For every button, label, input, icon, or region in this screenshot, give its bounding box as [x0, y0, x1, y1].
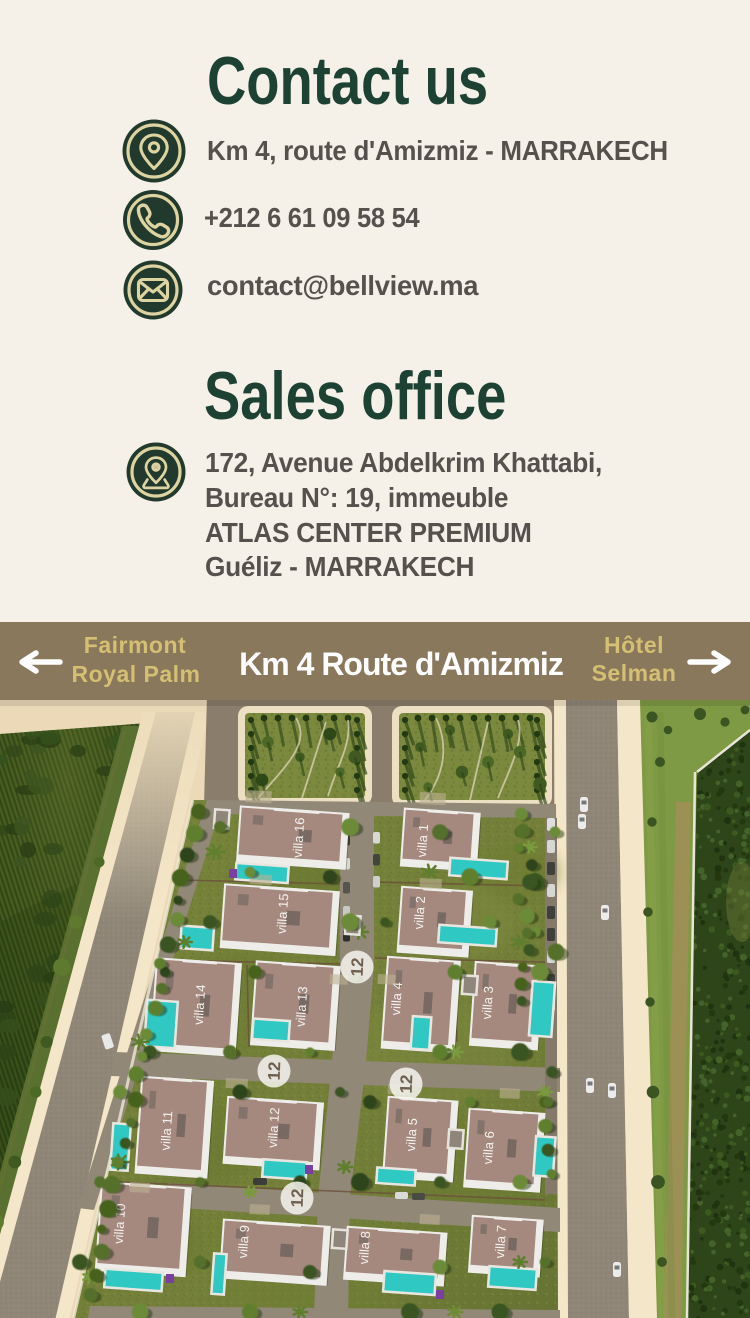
svg-text:villa 8: villa 8	[356, 1231, 373, 1265]
svg-text:villa 6: villa 6	[480, 1131, 497, 1165]
svg-text:villa 2: villa 2	[411, 896, 428, 930]
svg-text:villa 14: villa 14	[191, 984, 209, 1025]
svg-text:villa 4: villa 4	[388, 982, 405, 1016]
svg-text:12: 12	[265, 1061, 285, 1081]
svg-text:12: 12	[348, 957, 368, 977]
svg-text:Fairmont: Fairmont	[84, 632, 186, 658]
svg-text:villa 15: villa 15	[274, 893, 292, 934]
svg-text:Km 4 Route d'Amizmiz: Km 4 Route d'Amizmiz	[239, 646, 563, 682]
svg-text:Hôtel: Hôtel	[604, 632, 664, 658]
svg-text:villa 11: villa 11	[158, 1110, 176, 1150]
svg-text:villa 7: villa 7	[492, 1225, 509, 1259]
svg-text:Selman: Selman	[592, 660, 677, 686]
svg-text:villa 1: villa 1	[414, 824, 431, 858]
svg-text:villa 9: villa 9	[235, 1225, 252, 1259]
svg-text:villa 12: villa 12	[265, 1107, 283, 1148]
svg-text:villa 3: villa 3	[479, 986, 496, 1020]
svg-text:villa 13: villa 13	[293, 986, 311, 1027]
svg-text:12: 12	[397, 1074, 417, 1094]
svg-text:12: 12	[288, 1188, 308, 1208]
svg-text:villa 5: villa 5	[403, 1118, 420, 1152]
svg-text:villa 16: villa 16	[290, 817, 308, 858]
svg-text:Royal Palm: Royal Palm	[72, 661, 201, 687]
